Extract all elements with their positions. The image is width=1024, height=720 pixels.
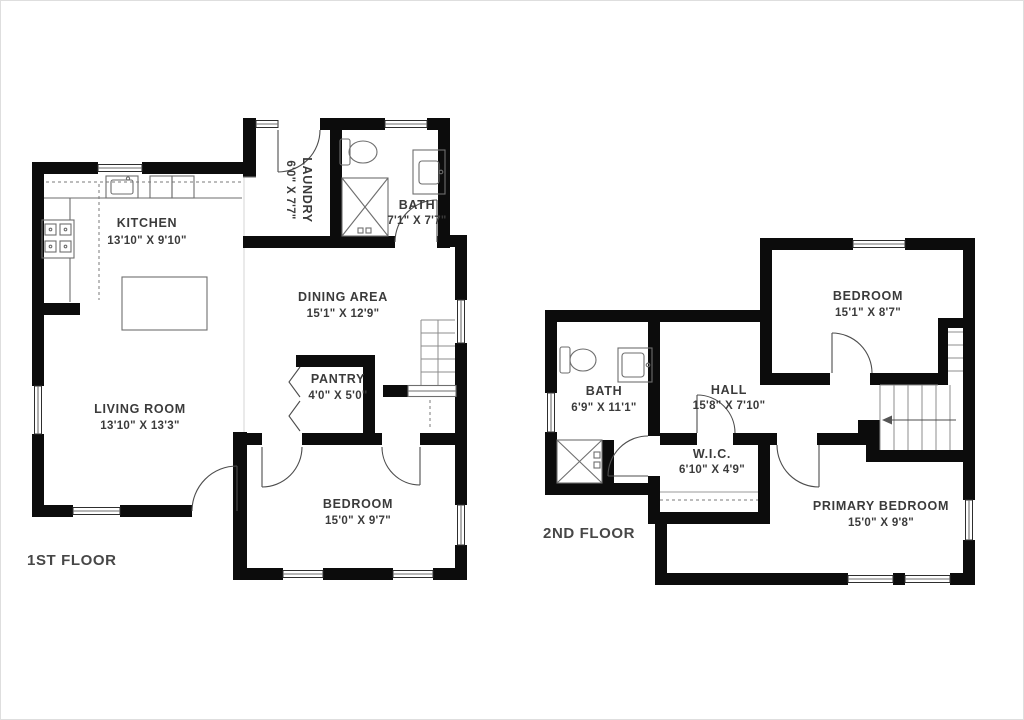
bathroom-sink-icon bbox=[618, 348, 652, 382]
room-label-bath-1: BATH bbox=[399, 198, 436, 212]
room-label-hall: HALL bbox=[711, 383, 747, 397]
window-icon bbox=[458, 505, 465, 545]
kitchen-sink-icon bbox=[106, 176, 138, 198]
dishwasher-icon bbox=[150, 176, 194, 198]
window-icon bbox=[548, 393, 555, 432]
window-icon bbox=[458, 300, 465, 343]
room-dims-bedroom-2: 15'1" X 8'7" bbox=[835, 307, 901, 319]
closet-slider-door bbox=[408, 386, 456, 397]
room-label-living: LIVING ROOM bbox=[94, 402, 186, 416]
pantry-bifold-doors bbox=[289, 367, 300, 431]
second-floor-stairs-icon bbox=[880, 332, 963, 450]
wic-closet-lines bbox=[660, 492, 758, 500]
room-label-dining: DINING AREA bbox=[298, 290, 388, 304]
door-bedroom-2 bbox=[832, 333, 872, 373]
door-living-room bbox=[192, 466, 237, 511]
window-icon bbox=[35, 386, 42, 434]
room-dims-wic: 6'10" X 4'9" bbox=[679, 464, 745, 476]
second-floor-label: 2ND FLOOR bbox=[543, 525, 635, 542]
door-bedroom-left bbox=[262, 447, 302, 487]
window-icon bbox=[853, 241, 905, 248]
window-icon bbox=[905, 576, 950, 583]
room-dims-living: 13'10" X 13'3" bbox=[100, 420, 179, 432]
window-icon bbox=[73, 508, 120, 515]
room-dims-laundry: 6'0" X 7'7" bbox=[284, 160, 296, 219]
kitchen-island bbox=[122, 277, 207, 330]
room-label-bedroom-2: BEDROOM bbox=[833, 289, 903, 303]
window-icon bbox=[966, 500, 973, 540]
room-label-laundry: LAUNDRY bbox=[300, 157, 314, 223]
first-floor-doors bbox=[192, 130, 456, 511]
room-dims-bath-1: 7'1" X 7'7" bbox=[387, 215, 446, 227]
room-dims-bath-2: 6'9" X 11'1" bbox=[571, 402, 636, 414]
floor-plan-page: KITCHEN 13'10" X 9'10" LAUNDRY 6'0" X 7'… bbox=[0, 0, 1024, 720]
room-label-bedroom-1: BEDROOM bbox=[323, 497, 393, 511]
room-dims-bedroom-1: 15'0" X 9'7" bbox=[325, 515, 391, 527]
room-dims-hall: 15'8" X 7'10" bbox=[693, 400, 766, 412]
toilet-icon bbox=[560, 347, 596, 373]
window-icon bbox=[98, 165, 142, 172]
room-dims-dining: 15'1" X 12'9" bbox=[307, 308, 380, 320]
room-dims-primary-bedroom: 15'0" X 9'8" bbox=[848, 517, 914, 529]
window-icon bbox=[385, 121, 427, 128]
room-dims-kitchen: 13'10" X 9'10" bbox=[107, 235, 186, 247]
room-label-kitchen: KITCHEN bbox=[117, 216, 177, 230]
room-label-pantry: PANTRY bbox=[311, 372, 365, 386]
shower-icon bbox=[342, 178, 388, 236]
shower-icon bbox=[557, 440, 602, 483]
second-floor-plan: BEDROOM 15'1" X 8'7" BATH 6'9" X 11'1" H… bbox=[543, 238, 975, 585]
floor-plan-svg: KITCHEN 13'10" X 9'10" LAUNDRY 6'0" X 7'… bbox=[0, 0, 1024, 720]
room-label-primary-bedroom: PRIMARY BEDROOM bbox=[813, 499, 949, 513]
window-icon bbox=[283, 571, 323, 578]
window-icon bbox=[848, 576, 893, 583]
first-floor-windows bbox=[35, 121, 465, 578]
stove-icon bbox=[42, 220, 74, 258]
window-icon bbox=[256, 121, 278, 128]
window-icon bbox=[393, 571, 433, 578]
first-floor-plan: KITCHEN 13'10" X 9'10" LAUNDRY 6'0" X 7'… bbox=[27, 118, 467, 580]
door-bedroom-right bbox=[382, 447, 420, 485]
room-label-bath-2: BATH bbox=[586, 384, 623, 398]
toilet-icon bbox=[340, 139, 377, 165]
door-primary-bedroom bbox=[777, 445, 819, 487]
stair-direction-arrow bbox=[882, 416, 956, 425]
room-label-wic: W.I.C. bbox=[693, 447, 731, 461]
room-dims-pantry: 4'0" X 5'0" bbox=[308, 390, 367, 402]
first-floor-stairs-icon bbox=[421, 320, 455, 430]
first-floor-label: 1ST FLOOR bbox=[27, 552, 117, 569]
